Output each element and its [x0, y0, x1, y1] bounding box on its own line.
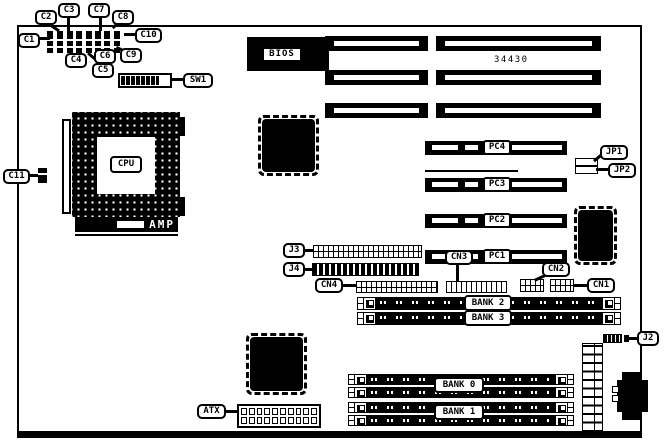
callout-c3: C3	[58, 3, 80, 18]
callout-cn1: CN1	[587, 278, 615, 293]
trace-line	[425, 170, 518, 172]
callout-j2: J2	[637, 331, 659, 346]
qfp-chip-north	[262, 119, 315, 172]
regulator-window	[117, 221, 144, 228]
isa-slot-2-left	[325, 70, 428, 85]
cpu-socket: CPU	[72, 112, 180, 217]
part-number: 34430	[494, 55, 529, 65]
leader-j2	[629, 337, 637, 340]
leader-cn4	[342, 284, 356, 287]
callout-c6: C6	[94, 49, 116, 64]
callout-c2: C2	[35, 10, 57, 25]
callout-cn4: CN4	[315, 278, 343, 293]
pci-label-pc1: PC1	[483, 249, 511, 264]
callout-c11: C11	[3, 169, 30, 184]
leader-cn1	[574, 284, 587, 287]
header-cn1	[550, 279, 574, 292]
capacitor-c3	[67, 31, 73, 53]
callout-c8: C8	[112, 10, 134, 25]
bank0-label: BANK 0	[434, 377, 484, 393]
bios-chip-label: BIOS	[262, 47, 302, 62]
leader-c1	[40, 37, 50, 40]
bank2-label: BANK 2	[464, 295, 512, 311]
cpu-label: CPU	[110, 156, 142, 173]
capacitor-c2	[57, 31, 63, 53]
callout-cn3: CN3	[445, 250, 473, 265]
callout-c9: C9	[120, 48, 142, 63]
header-j3	[313, 245, 422, 258]
regulator-underline	[75, 234, 178, 236]
leader-jp2	[596, 168, 608, 171]
header-j4	[312, 263, 419, 276]
isa-slot-3-right	[436, 103, 601, 118]
leader-j4	[305, 268, 312, 271]
capacitor-c11	[38, 168, 47, 183]
capacitor-c5	[86, 31, 92, 53]
header-cn4	[356, 281, 438, 293]
callout-jp1: JP1	[600, 145, 628, 160]
callout-c4: C4	[65, 53, 87, 68]
leader-cn3	[456, 263, 459, 281]
header-cn3	[446, 281, 507, 293]
socket-lever	[62, 119, 71, 214]
keyboard-connector	[612, 372, 648, 420]
voltage-regulator-amp: AMP	[75, 217, 178, 232]
header-cn2	[520, 279, 544, 292]
leader-atx	[226, 410, 238, 413]
leader-c3	[67, 17, 70, 31]
callout-atx: ATX	[197, 404, 226, 419]
bank1-label: BANK 1	[434, 404, 484, 420]
leader-c11	[29, 174, 38, 177]
callout-c5: C5	[92, 63, 114, 78]
pci-label-pc4: PC4	[483, 140, 511, 155]
isa-slot-1-left	[325, 36, 428, 51]
amp-label: AMP	[149, 219, 175, 230]
pci-label-pc2: PC2	[483, 213, 511, 228]
qfp-chip-south	[250, 337, 303, 391]
callout-c10: C10	[135, 28, 162, 43]
bank3-label: BANK 3	[464, 310, 512, 326]
dip-switch-sw1	[118, 73, 172, 88]
callout-sw1: SW1	[183, 73, 213, 88]
leader-j3	[305, 249, 313, 252]
leader-c7	[99, 16, 102, 31]
motherboard-diagram: BIOS 34430 CPU AMP PC4 PC3 PC2 PC1	[0, 0, 664, 440]
callout-c7: C7	[88, 3, 110, 18]
isa-slot-1-right	[436, 36, 601, 51]
callout-c1: C1	[18, 33, 40, 48]
callout-j4: J4	[283, 262, 305, 277]
connector-j2	[603, 334, 622, 343]
leader-c10	[124, 33, 135, 36]
callout-j3: J3	[283, 243, 305, 258]
qfp-chip-east	[578, 210, 613, 261]
atx-power-connector	[237, 404, 321, 428]
cpu-socket-center: CPU	[97, 137, 155, 194]
pci-label-pc3: PC3	[483, 177, 511, 192]
isa-slot-3-left	[325, 103, 428, 118]
power-header-connector	[582, 343, 603, 431]
callout-jp2: JP2	[608, 163, 636, 178]
isa-slot-2-right	[436, 70, 601, 85]
jumper-jp2	[575, 166, 598, 174]
leader-sw1	[172, 78, 183, 81]
callout-cn2: CN2	[542, 262, 570, 277]
capacitor-c1	[47, 31, 53, 53]
